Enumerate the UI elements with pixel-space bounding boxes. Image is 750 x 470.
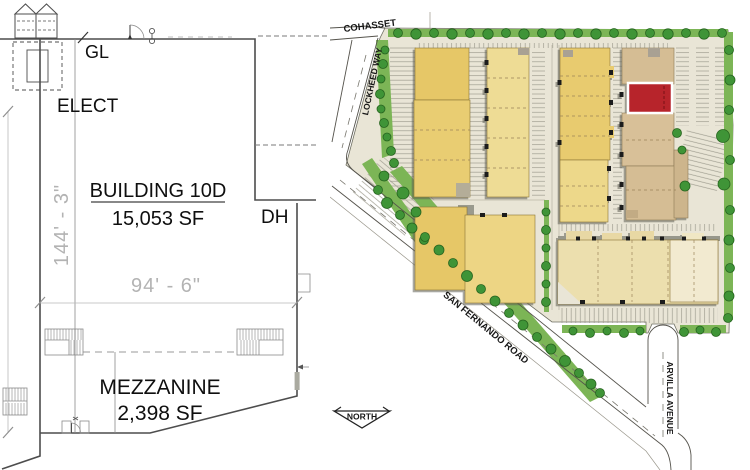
building-cluster-lower-left — [415, 205, 535, 303]
building-name-label: BUILDING 10D — [90, 180, 227, 202]
dock-door-hatch — [295, 372, 300, 390]
mezzanine-area-label: 2,398 SF — [117, 402, 202, 425]
stair-left — [45, 329, 83, 355]
electrical-equipment — [13, 4, 62, 90]
entry-door — [128, 25, 155, 44]
elect-label: ELECT — [57, 96, 119, 117]
site-plan: COHASSET LOCKHEED WAY SAN FERNANDO ROAD … — [330, 0, 750, 470]
dh-label: DH — [261, 207, 288, 228]
building-area-label: 15,053 SF — [112, 208, 204, 230]
dimension-height-label: 144' - 3" — [51, 184, 73, 266]
north-arrow: NORTH — [334, 407, 390, 428]
vestibule-door — [62, 417, 89, 433]
street-label-arvilla-avenue: ARVILLA AVENUE — [665, 361, 675, 435]
north-label: NORTH — [347, 412, 377, 422]
gl-label: GL — [85, 42, 109, 62]
subject-building-highlight — [628, 83, 672, 113]
floor-plan: 94' - 6" 144' - 3" GL ELECT BUILDING 10D… — [0, 0, 330, 470]
mezzanine-name-label: MEZZANINE — [99, 376, 220, 399]
stair-exterior — [3, 388, 27, 415]
stair-right — [237, 329, 283, 355]
plan-graphic: 94' - 6" 144' - 3" GL ELECT BUILDING 10D… — [0, 0, 750, 470]
building-cluster-middle — [558, 48, 615, 222]
building-cluster-bottom — [558, 231, 720, 304]
dimension-width-label: 94' - 6" — [131, 275, 201, 297]
